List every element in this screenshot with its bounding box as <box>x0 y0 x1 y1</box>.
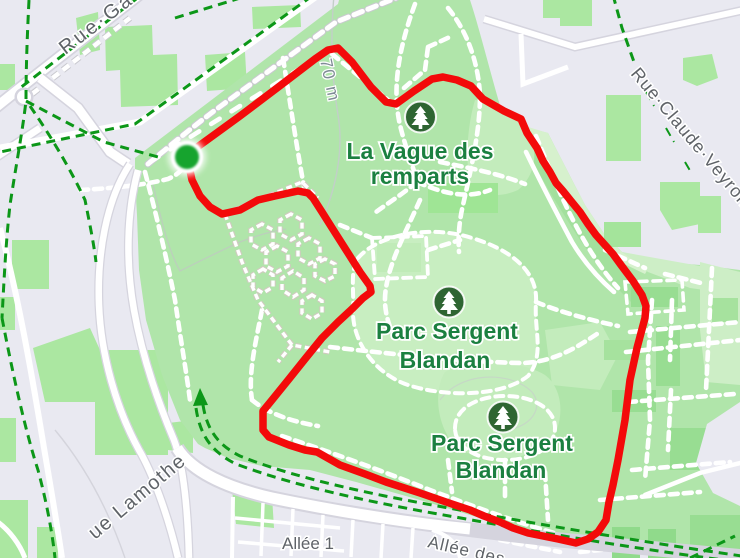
svg-text:Parc Sergent: Parc Sergent <box>431 430 573 456</box>
svg-text:Blandan: Blandan <box>400 347 491 373</box>
svg-text:Parc Sergent: Parc Sergent <box>376 318 518 344</box>
svg-text:La Vague des: La Vague des <box>346 138 493 164</box>
svg-text:Allée 1: Allée 1 <box>282 534 334 553</box>
svg-text:Blandan: Blandan <box>456 457 547 483</box>
svg-text:remparts: remparts <box>371 163 469 189</box>
